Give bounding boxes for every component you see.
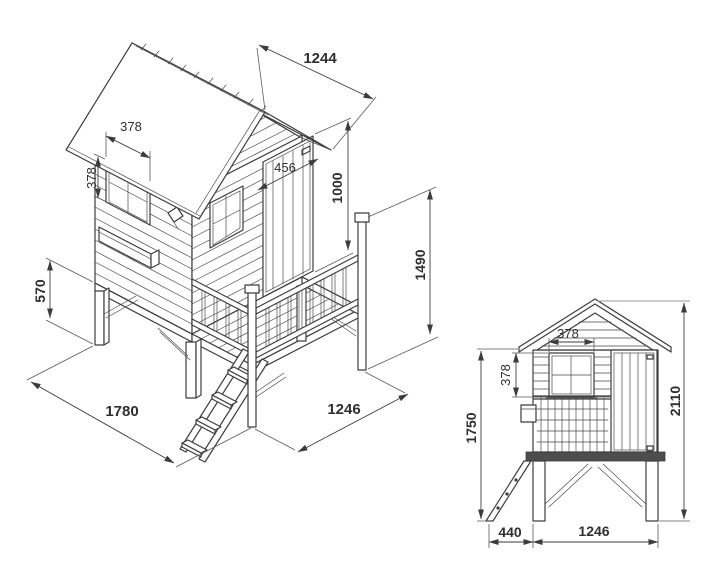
dim-label-elev-window-height: 378 [498,364,513,386]
dim-label-rail-post-height: 1490 [412,249,428,280]
dim-label-ladder-depth: 440 [498,524,522,540]
dim-leg-height: 570 [32,258,93,344]
elev-gable [537,313,653,350]
dim-label-side-window-height: 378 [84,167,99,189]
dim-label-base-width: 1246 [327,401,360,418]
dim-label-door-width: 456 [274,160,296,175]
dim-label-leg-height: 570 [32,279,48,303]
dim-label-elev-window-width: 378 [557,326,579,341]
dim-label-roof-panel-width: 1244 [303,50,337,67]
elev-leg-braces [545,464,646,507]
dim-label-eaves-height: 1750 [463,412,479,443]
dim-label-base-depth: 1780 [105,403,138,420]
dim-label-side-window-width: 378 [120,119,142,134]
dim-label-door-height: 1000 [329,172,345,203]
front-elevation-view: 378 378 1750 2110 440 [463,299,690,548]
dim-label-elev-house-width: 1246 [578,523,609,539]
elev-legs [533,461,658,521]
dim-elev-house-width: 1246 [533,523,658,548]
isometric-view: 1244 378 378 456 1000 [27,43,438,467]
elev-flower-box [521,405,536,422]
playhouse-technical-drawing: 1244 378 378 456 1000 [0,0,720,575]
elev-door [611,350,657,452]
dim-rail-post-height: 1490 [368,187,438,369]
elev-deck [526,452,665,461]
dim-label-overall-height: 2110 [667,386,683,417]
rail-post [355,213,369,370]
dim-ladder-depth: 440 [489,524,533,548]
dim-base-width: 1246 [255,372,408,452]
elev-ladder [486,461,531,521]
dim-door-height: 1000 [315,118,353,272]
elev-window [546,353,597,398]
technical-drawing-page: 1244 378 378 456 1000 [0,0,720,575]
dim-base-depth: 1780 [27,346,251,467]
